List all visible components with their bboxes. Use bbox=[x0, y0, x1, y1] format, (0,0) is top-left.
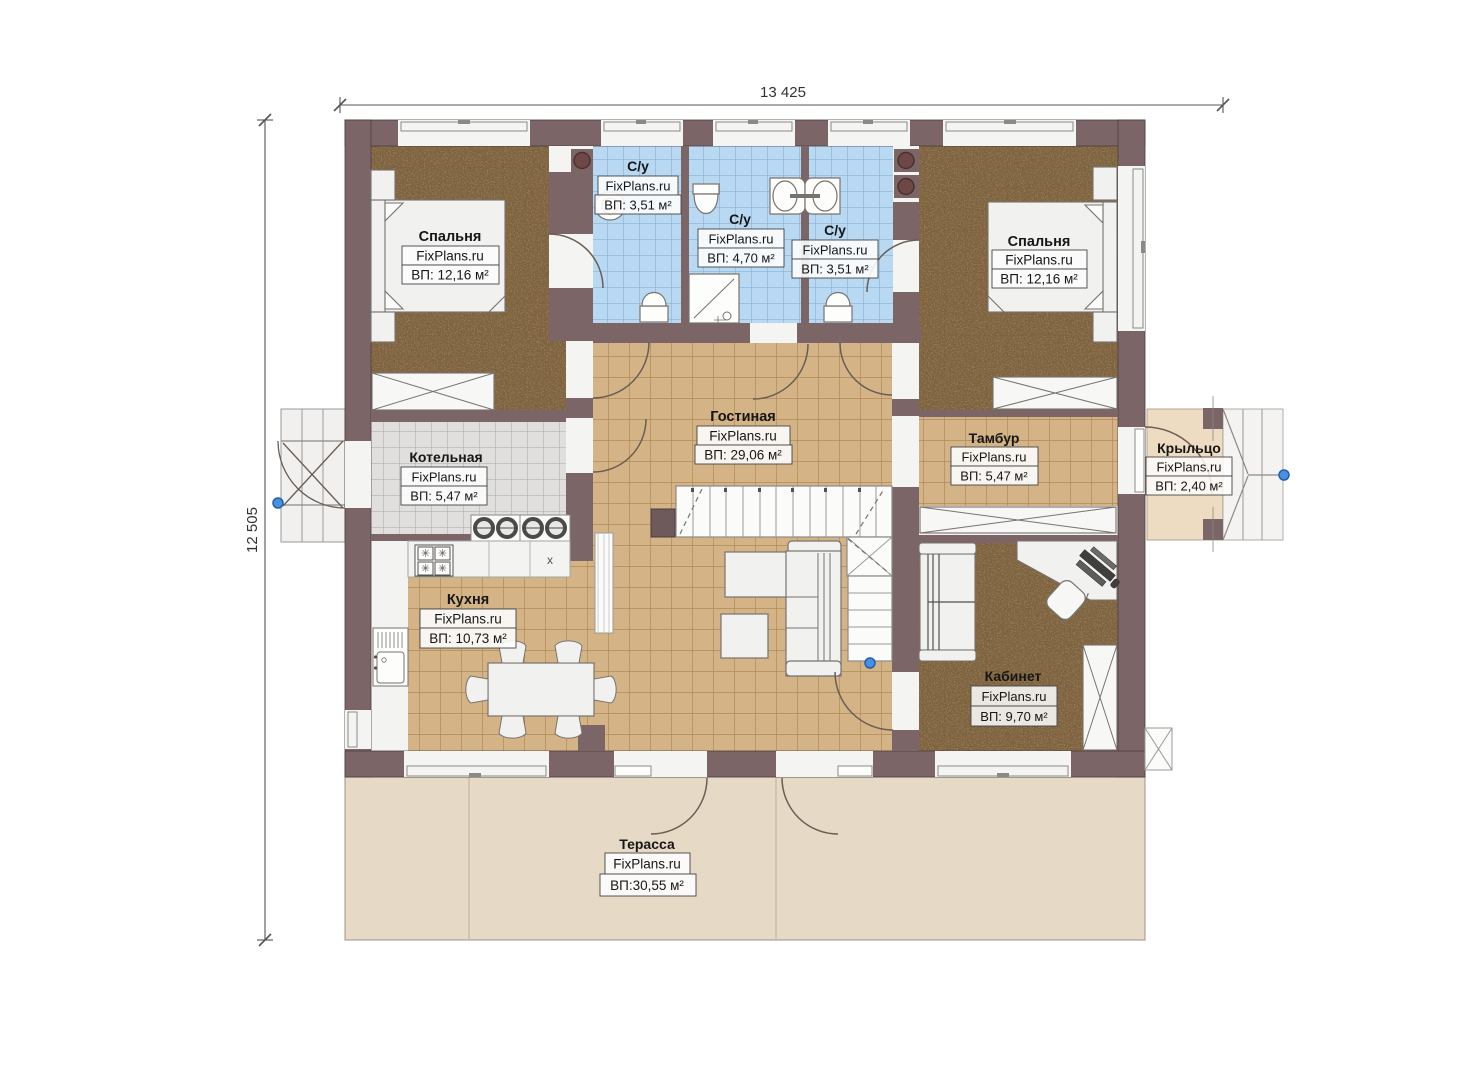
svg-text:ВП: 5,47 м²: ВП: 5,47 м² bbox=[410, 489, 478, 504]
svg-text:✳: ✳ bbox=[438, 563, 447, 575]
svg-text:ВП: 10,73 м²: ВП: 10,73 м² bbox=[429, 631, 507, 646]
svg-text:FixPlans.ru: FixPlans.ru bbox=[434, 612, 502, 627]
svg-text:FixPlans.ru: FixPlans.ru bbox=[411, 470, 476, 485]
svg-text:Тамбур: Тамбур bbox=[969, 430, 1020, 446]
svg-text:С/у: С/у bbox=[824, 222, 846, 238]
svg-text:FixPlans.ru: FixPlans.ru bbox=[802, 243, 867, 258]
svg-text:ВП: 12,16 м²: ВП: 12,16 м² bbox=[411, 268, 489, 283]
svg-text:FixPlans.ru: FixPlans.ru bbox=[416, 249, 484, 264]
svg-text:Терасса: Терасса bbox=[619, 836, 675, 852]
svg-text:С/у: С/у bbox=[729, 211, 751, 227]
svg-text:Кухня: Кухня bbox=[447, 592, 489, 608]
svg-text:FixPlans.ru: FixPlans.ru bbox=[981, 689, 1046, 704]
svg-text:FixPlans.ru: FixPlans.ru bbox=[605, 179, 670, 194]
svg-text:ВП: 3,51 м²: ВП: 3,51 м² bbox=[604, 198, 672, 213]
svg-text:13 425: 13 425 bbox=[760, 84, 806, 101]
svg-text:ВП: 12,16 м²: ВП: 12,16 м² bbox=[1000, 272, 1078, 287]
svg-text:Котельная: Котельная bbox=[409, 449, 482, 465]
svg-text:✳: ✳ bbox=[421, 563, 430, 575]
svg-text:12 505: 12 505 bbox=[244, 507, 261, 553]
svg-text:FixPlans.ru: FixPlans.ru bbox=[709, 429, 777, 444]
svg-text:FixPlans.ru: FixPlans.ru bbox=[613, 857, 681, 872]
svg-text:С/у: С/у bbox=[627, 158, 649, 174]
svg-text:Кабинет: Кабинет bbox=[985, 668, 1042, 684]
svg-text:Гостиная: Гостиная bbox=[710, 409, 776, 425]
svg-text:ВП: 3,51 м²: ВП: 3,51 м² bbox=[801, 262, 869, 277]
svg-text:ВП: 4,70 м²: ВП: 4,70 м² bbox=[707, 251, 775, 266]
svg-text:FixPlans.ru: FixPlans.ru bbox=[1156, 460, 1221, 475]
svg-text:ВП:30,55 м²: ВП:30,55 м² bbox=[610, 878, 684, 893]
svg-text:FixPlans.ru: FixPlans.ru bbox=[708, 232, 773, 247]
svg-text:ВП: 2,40 м²: ВП: 2,40 м² bbox=[1155, 479, 1223, 494]
svg-text:✳: ✳ bbox=[438, 548, 447, 560]
svg-text:Спальня: Спальня bbox=[1008, 234, 1071, 250]
svg-text:Спальня: Спальня bbox=[419, 229, 482, 245]
svg-text:FixPlans.ru: FixPlans.ru bbox=[961, 450, 1026, 465]
svg-text:ВП: 5,47 м²: ВП: 5,47 м² bbox=[960, 469, 1028, 484]
svg-text:✳: ✳ bbox=[421, 548, 430, 560]
svg-text:ВП: 29,06 м²: ВП: 29,06 м² bbox=[704, 448, 782, 463]
svg-text:FixPlans.ru: FixPlans.ru bbox=[1005, 253, 1073, 268]
svg-text:x: x bbox=[547, 553, 553, 567]
svg-text:Крыльцо: Крыльцо bbox=[1157, 440, 1221, 456]
svg-text:ВП: 9,70 м²: ВП: 9,70 м² bbox=[980, 709, 1048, 724]
